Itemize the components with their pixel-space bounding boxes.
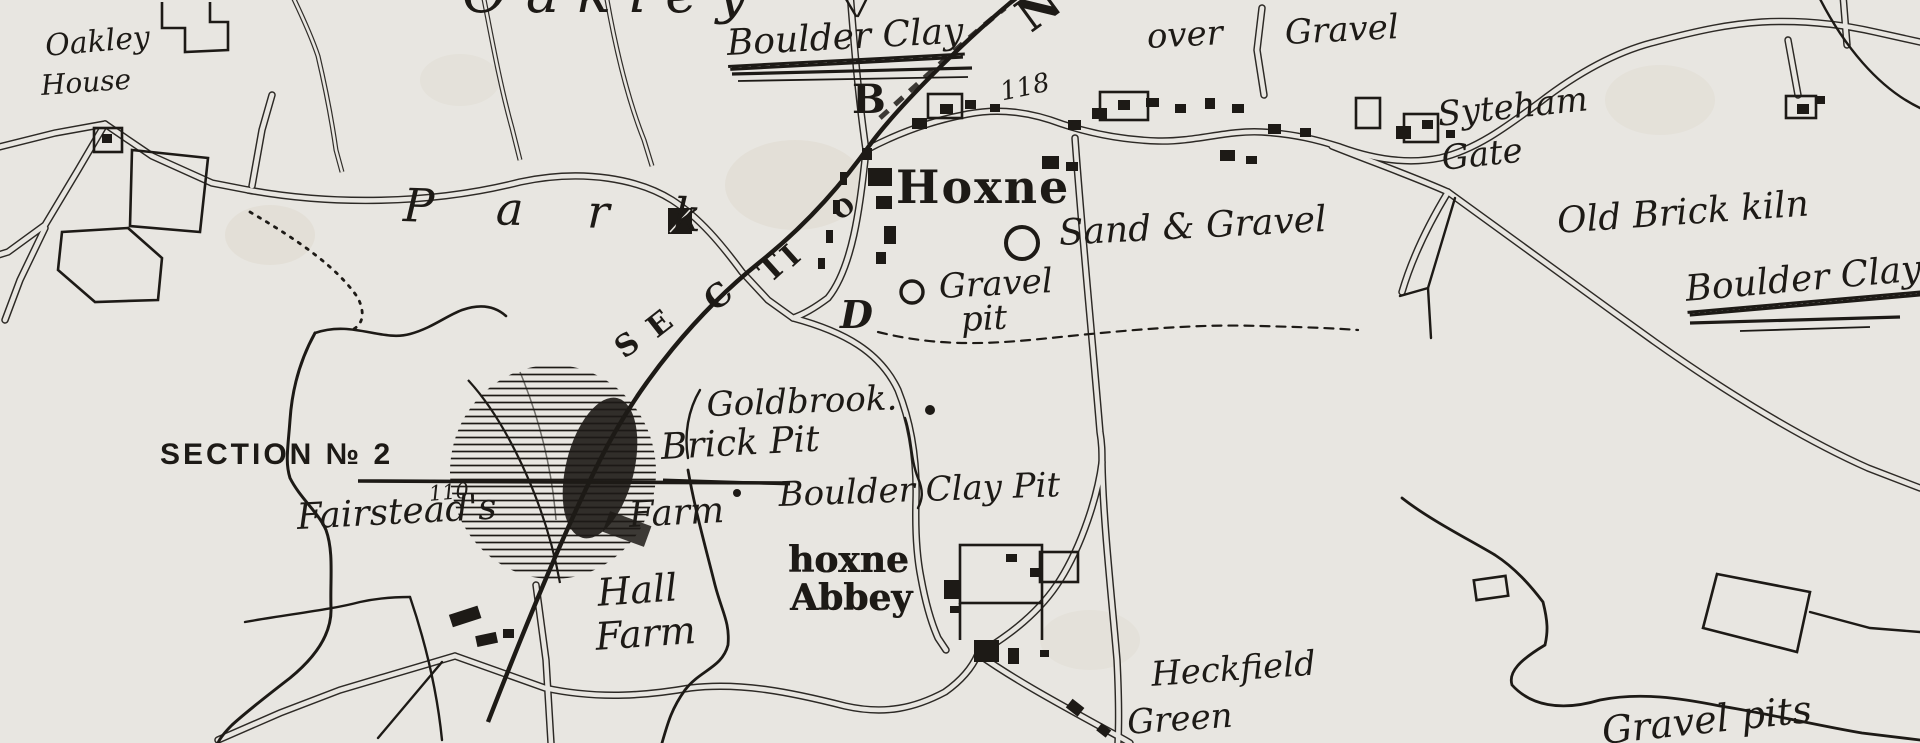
park-square-symbol [668,208,692,234]
section-rule-dot [733,489,741,497]
goldbrook-dot [925,405,935,415]
antique-map-of-hoxne: OakleyOakleyHouseBoulder ClayBoverGravel… [0,0,1920,743]
map-linework [0,0,1920,743]
